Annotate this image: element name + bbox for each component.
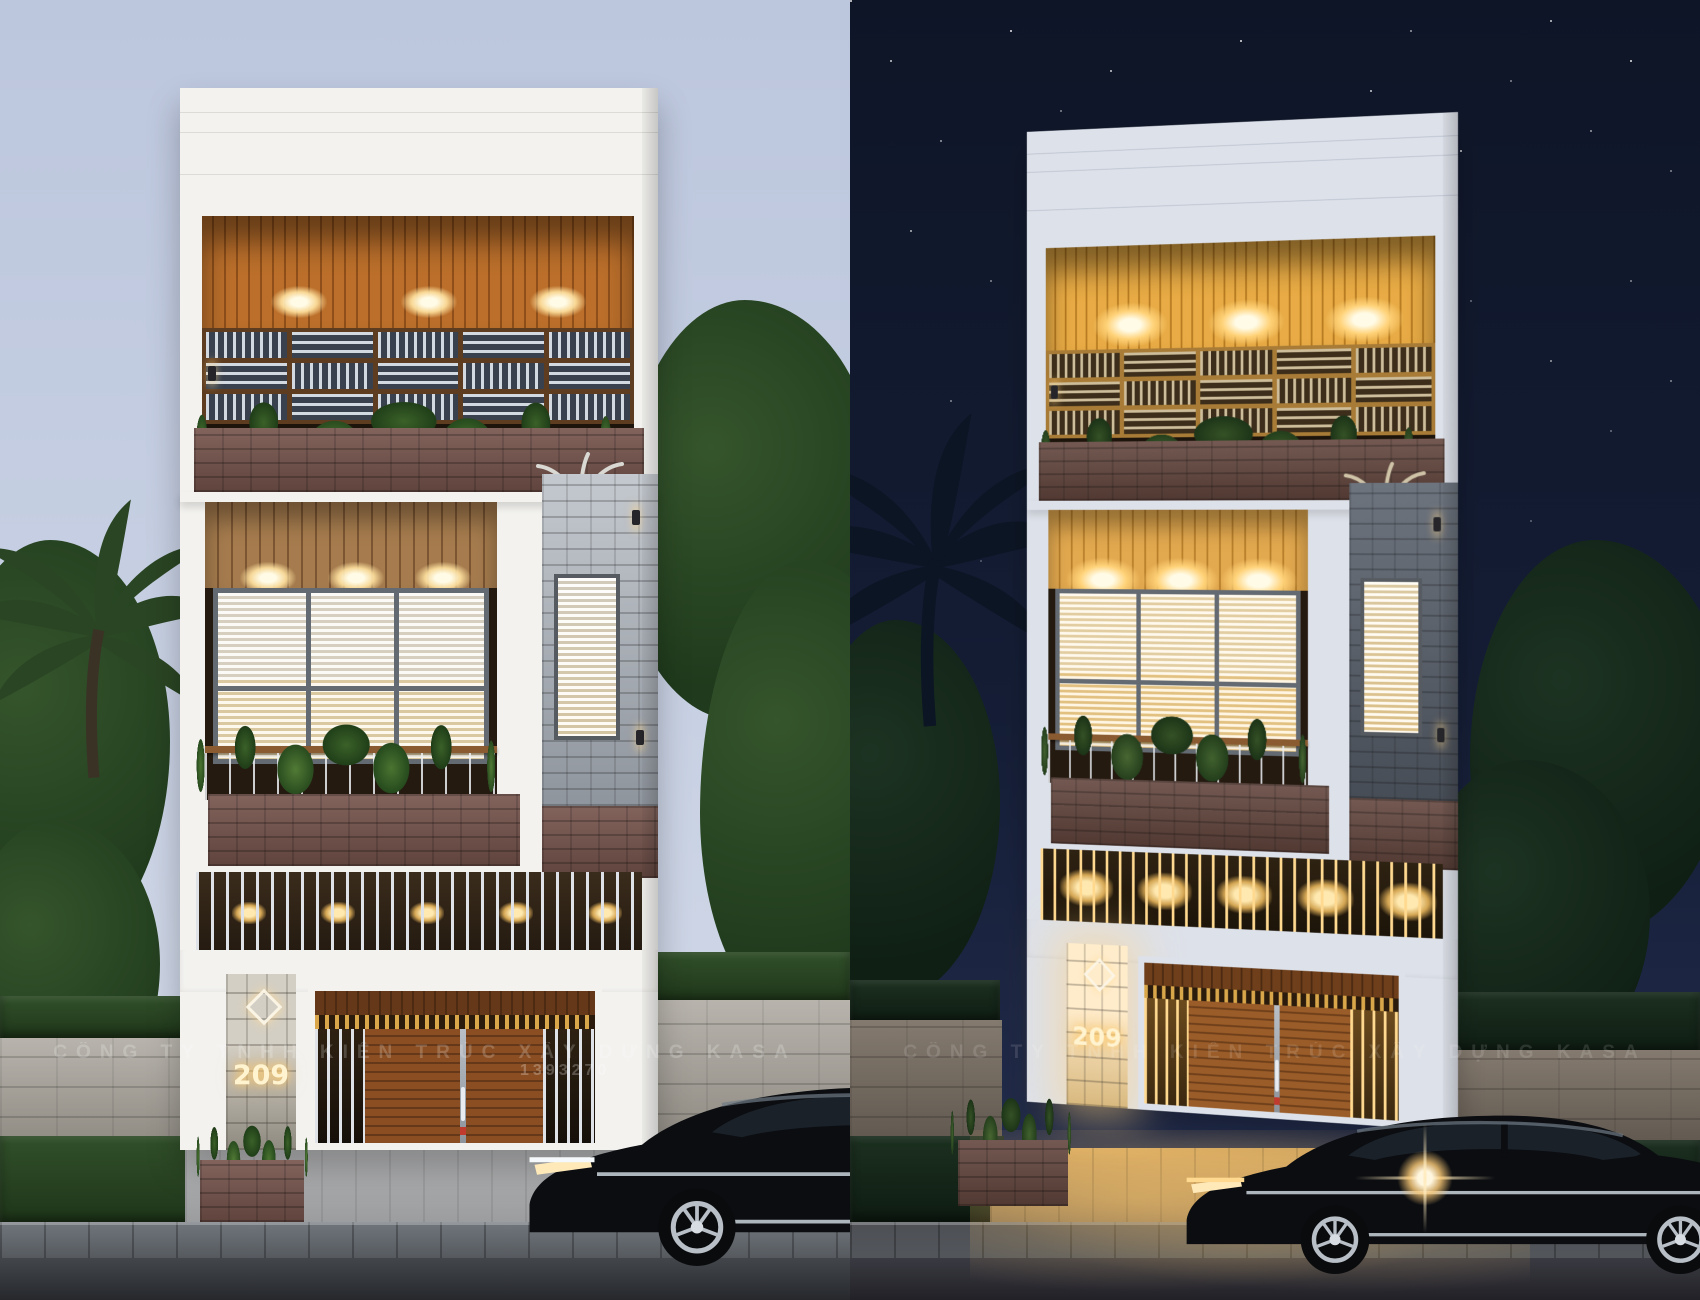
balcony-planter <box>208 794 520 866</box>
pergola-cell <box>549 332 630 358</box>
side-brick-wall <box>542 806 658 878</box>
pergola-cell <box>292 332 373 358</box>
night-panel: 209 CÔNG TY TNHH KIẾN TRÚC XÂ <box>850 0 1700 1300</box>
pergola-cell <box>292 363 373 389</box>
wall-sconce <box>1051 385 1058 399</box>
wall-sconce <box>208 366 216 381</box>
downlight <box>1208 299 1284 346</box>
parapet-line <box>180 132 658 133</box>
downlight <box>401 286 457 318</box>
side-brick-wall <box>1349 798 1458 871</box>
wall-sconce <box>632 510 640 525</box>
tiled-column <box>1349 483 1458 802</box>
screen-light <box>1298 878 1354 918</box>
screen-light <box>588 902 622 924</box>
gate-header-wood <box>315 991 595 1015</box>
pergola-cell <box>1200 379 1273 404</box>
screen-light <box>1217 875 1272 914</box>
pergola-cell <box>1277 348 1351 374</box>
house-number: 209 <box>226 1060 296 1091</box>
base-planter <box>200 1160 304 1222</box>
gate-handle <box>461 1087 465 1121</box>
pergola-cell <box>1049 381 1119 406</box>
screen-light <box>410 902 444 924</box>
lens-flare <box>1355 1108 1495 1248</box>
screen-light <box>232 902 266 924</box>
car-wheel <box>658 1189 736 1267</box>
wall-sconce <box>1437 728 1445 743</box>
pergola-cell <box>1356 347 1432 373</box>
wall-sconce <box>1433 517 1441 531</box>
pergola-cell <box>463 363 544 389</box>
pergola-cell <box>378 332 459 358</box>
pergola-cell <box>463 332 544 358</box>
second-floor-balcony <box>205 502 497 800</box>
screen-light <box>1060 869 1113 908</box>
tiled-column <box>542 474 658 806</box>
base-planter <box>958 1140 1068 1206</box>
downlight <box>1094 302 1168 348</box>
balcony-planter <box>1051 777 1329 854</box>
parapet-line <box>180 174 658 175</box>
house-number-pier: 209 <box>1067 943 1128 1109</box>
second-floor-balcony <box>1048 510 1308 791</box>
balcony-plants <box>195 714 517 806</box>
hedge-top <box>850 980 1000 1024</box>
pergola-cell <box>206 363 287 389</box>
pergola-cell <box>1200 350 1273 376</box>
parapet-line <box>1027 195 1458 212</box>
hedge-top <box>0 996 190 1040</box>
pergola-cell <box>1124 380 1196 405</box>
wall-sconce <box>636 730 644 745</box>
parapet-line <box>1027 135 1458 155</box>
hedge-base <box>0 1136 196 1224</box>
pergola-cell <box>378 363 459 389</box>
pergola-cell <box>206 332 287 358</box>
stairwell-window <box>1360 578 1422 737</box>
black-sedan-car <box>522 1022 850 1300</box>
building-facade: 209 <box>180 88 658 1150</box>
parapet-line <box>180 112 658 113</box>
slatted-screen-band <box>196 872 642 954</box>
window-mullion <box>1060 679 1296 688</box>
screen-light <box>1138 872 1192 911</box>
diamond-ornament-icon <box>246 989 283 1026</box>
pergola-cell <box>549 363 630 389</box>
flare-core <box>1397 1150 1453 1206</box>
downlight <box>1326 296 1404 343</box>
pergola-cell <box>1049 353 1119 378</box>
screen-light <box>1380 882 1437 922</box>
stairwell-window <box>554 574 620 740</box>
pergola-cell <box>1277 378 1351 404</box>
parapet-line <box>1027 154 1458 173</box>
stars <box>850 0 852 2</box>
diamond-ornament-icon <box>1084 958 1116 992</box>
screen-light <box>321 902 355 924</box>
window-mullion <box>218 686 484 691</box>
hedge-top <box>652 952 850 1004</box>
scene: 209 CÔNG TY <box>0 0 1700 1300</box>
gate-lock-detail <box>460 1127 466 1135</box>
pergola-cell <box>1124 351 1196 376</box>
screen-light <box>499 902 533 924</box>
day-panel: 209 CÔNG TY <box>0 0 850 1300</box>
pergola-cell <box>1356 376 1432 402</box>
downlight <box>271 286 327 318</box>
downlight <box>530 286 586 318</box>
building-facade: 209 <box>1027 112 1458 1132</box>
